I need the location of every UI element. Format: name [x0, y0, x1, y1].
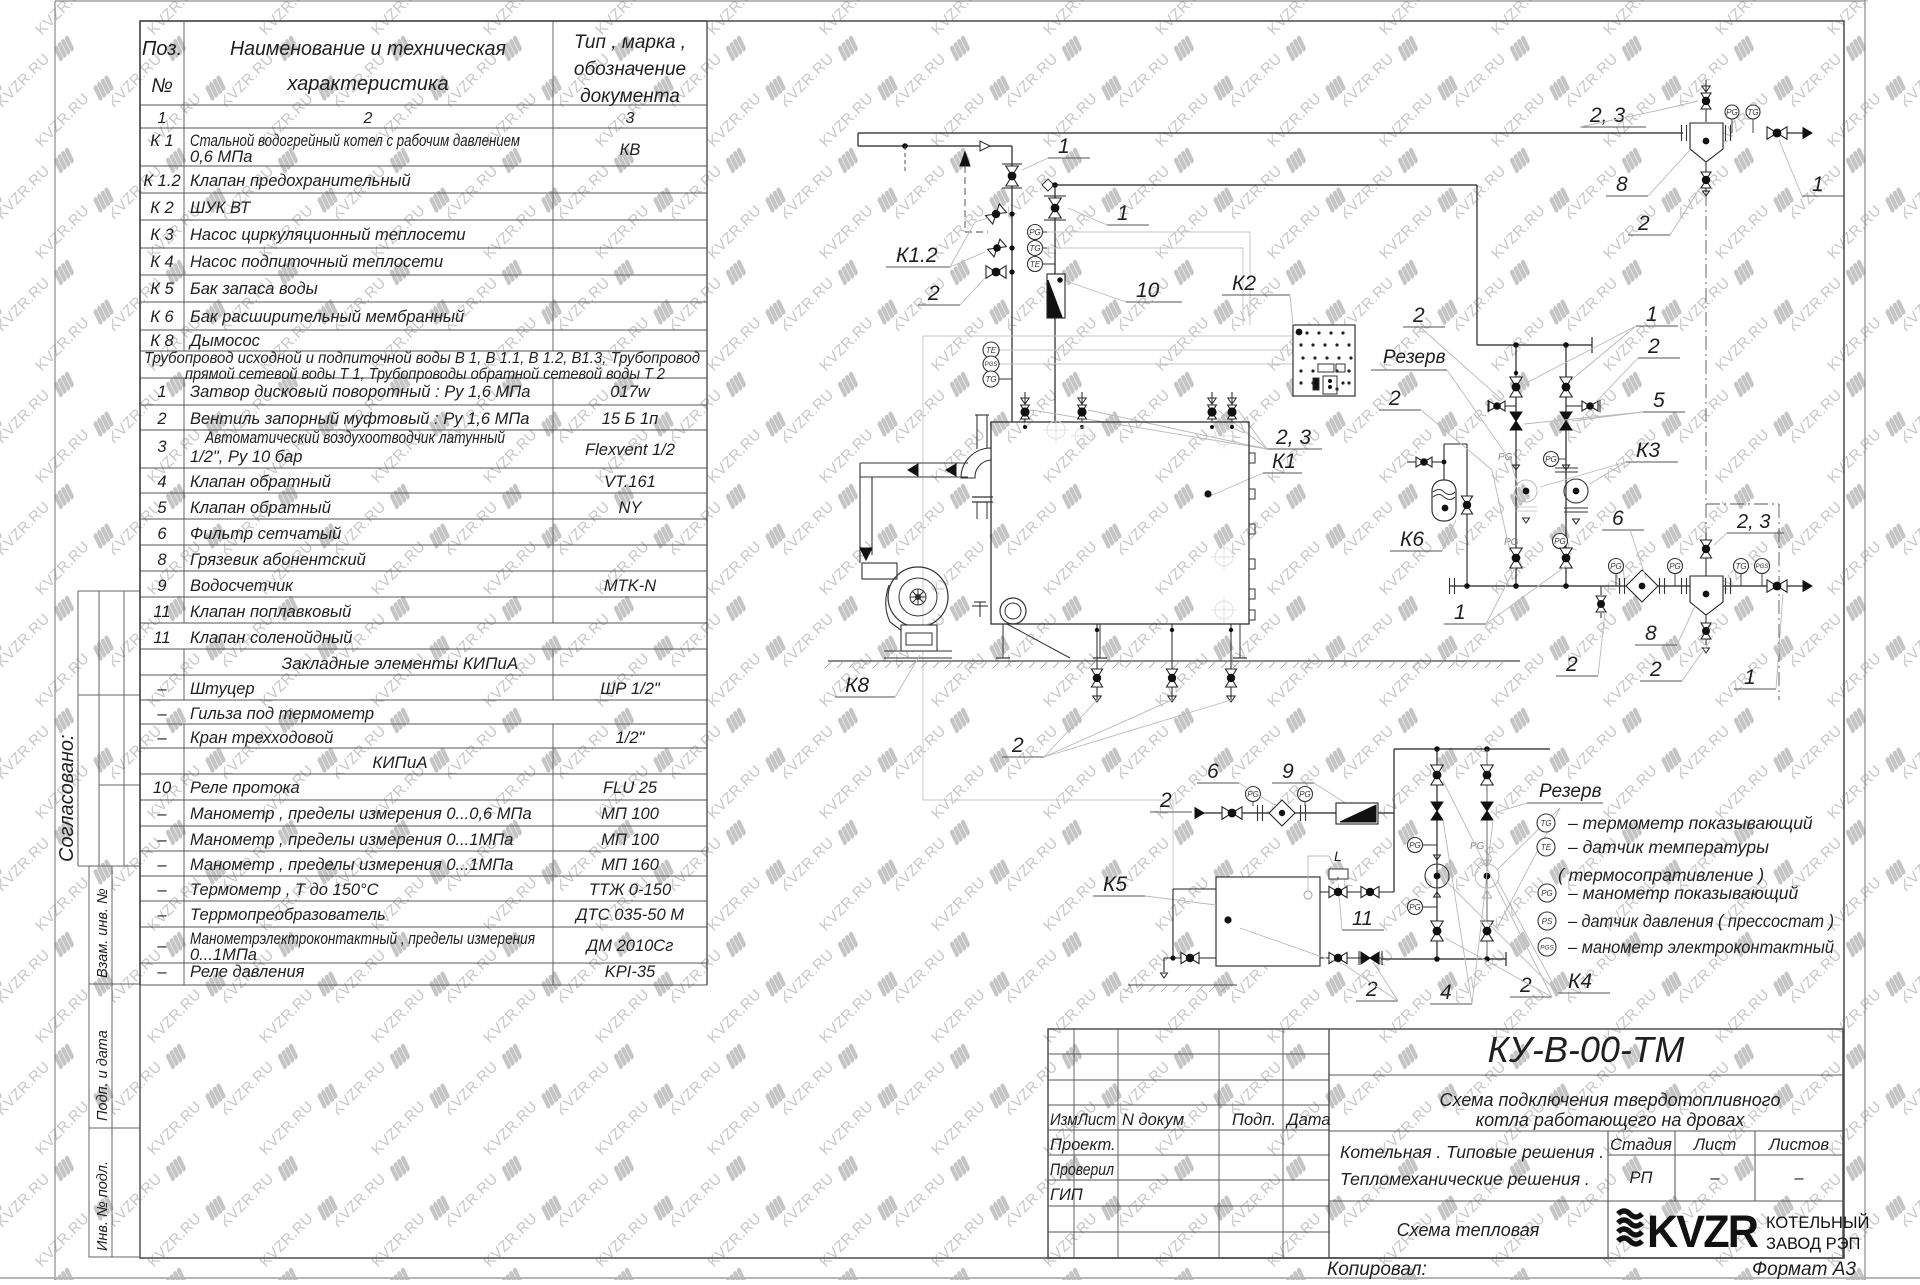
- svg-text:2: 2: [1388, 387, 1401, 410]
- svg-text:2: 2: [363, 110, 373, 127]
- svg-text:Лист: Лист: [1693, 1136, 1736, 1154]
- svg-text:4: 4: [157, 473, 166, 491]
- svg-text:6: 6: [157, 525, 167, 543]
- svg-text:Реле давления: Реле давления: [190, 963, 305, 981]
- svg-text:L: L: [1334, 848, 1342, 864]
- svg-text:KVZR: KVZR: [1647, 1206, 1758, 1257]
- svg-text:TG: TG: [1540, 819, 1551, 828]
- svg-text:К 2: К 2: [150, 199, 174, 217]
- svg-text:Стадия: Стадия: [1610, 1136, 1672, 1154]
- svg-text:TG: TG: [1735, 562, 1746, 571]
- svg-text:К1: К1: [1272, 450, 1296, 473]
- svg-text:Трубопровод исходной и подпито: Трубопровод исходной и подпиточной воды …: [144, 350, 700, 367]
- svg-text:Фильтр сетчатый: Фильтр сетчатый: [190, 525, 341, 543]
- svg-text:МП 100: МП 100: [601, 831, 660, 849]
- svg-text:ДМ 2010Сг: ДМ 2010Сг: [585, 937, 674, 955]
- svg-text:Манометр , пределы измерения: Манометр , пределы измерения 0...1МПа: [190, 831, 513, 849]
- svg-text:Котельная . Типовые решения .: Котельная . Типовые решения .: [1340, 1142, 1604, 1162]
- svg-text:Листов: Листов: [1768, 1136, 1829, 1154]
- svg-text:2: 2: [156, 410, 166, 428]
- svg-text:2: 2: [1365, 978, 1378, 1001]
- svg-text:8: 8: [1645, 622, 1657, 645]
- svg-text:Копировал:: Копировал:: [1327, 1259, 1427, 1280]
- svg-text:Бак расширительный мембранный: Бак расширительный мембранный: [190, 308, 464, 326]
- svg-text:5: 5: [1653, 389, 1665, 412]
- svg-text:Подп. и дата: Подп. и дата: [95, 1030, 111, 1121]
- svg-text:К 1: К 1: [150, 132, 174, 150]
- svg-text:2: 2: [1637, 212, 1650, 235]
- svg-text:PG: PG: [1504, 537, 1519, 548]
- svg-text:К1.2: К1.2: [896, 244, 938, 267]
- svg-text:документа: документа: [580, 86, 680, 107]
- svg-text:Проект.: Проект.: [1050, 1136, 1116, 1154]
- svg-text:1: 1: [1117, 202, 1129, 225]
- svg-text:3: 3: [157, 438, 167, 456]
- svg-text:К 3: К 3: [150, 226, 174, 244]
- svg-text:Реле протока: Реле протока: [190, 779, 300, 797]
- svg-text:PG: PG: [1669, 562, 1681, 571]
- svg-text:–: –: [156, 680, 167, 698]
- svg-text:К2: К2: [1232, 272, 1256, 295]
- svg-text:Бак запаса воды: Бак запаса воды: [190, 280, 318, 298]
- svg-text:MTK-N: MTK-N: [604, 577, 656, 595]
- svg-text:TG: TG: [985, 375, 996, 384]
- svg-text:–: –: [156, 729, 167, 747]
- svg-text:PG: PG: [1541, 889, 1553, 898]
- svg-text:Манометр , пределы измерения: Манометр , пределы измерения 0...1МПа: [190, 856, 513, 874]
- svg-text:К6: К6: [1400, 528, 1424, 551]
- svg-text:PG: PG: [1409, 903, 1421, 912]
- svg-text:К 4: К 4: [150, 253, 174, 271]
- svg-text:2: 2: [1159, 789, 1172, 812]
- svg-text:10: 10: [153, 779, 172, 797]
- svg-text:2: 2: [1519, 974, 1532, 997]
- svg-text:Водосчетчик: Водосчетчик: [190, 577, 294, 595]
- svg-text:TE: TE: [1541, 843, 1552, 852]
- svg-text:9: 9: [1282, 760, 1294, 783]
- svg-text:ДТС 035-50 М: ДТС 035-50 М: [574, 906, 684, 924]
- svg-text:11: 11: [153, 629, 170, 647]
- svg-text:Дымосос: Дымосос: [188, 332, 261, 350]
- svg-text:– датчик давления ( прессост: – датчик давления ( прессостат ): [1567, 911, 1834, 931]
- svg-text:–: –: [156, 705, 167, 723]
- svg-text:1/2": 1/2": [616, 729, 646, 747]
- svg-text:1: 1: [1744, 666, 1756, 689]
- svg-text:ЗАВОД РЭП: ЗАВОД РЭП: [1766, 1235, 1860, 1253]
- svg-text:Клапан обратный: Клапан обратный: [190, 473, 331, 491]
- svg-text:– манометр показывающий: – манометр показывающий: [1567, 883, 1798, 903]
- svg-text:Закладные элементы КИПиА: Закладные элементы КИПиА: [282, 654, 518, 673]
- svg-text:– манометр электроконтактный: – манометр электроконтактный: [1567, 937, 1834, 957]
- svg-text:К5: К5: [1103, 873, 1127, 896]
- svg-text:–: –: [1793, 1169, 1804, 1187]
- svg-text:6: 6: [1207, 760, 1219, 783]
- svg-text:2: 2: [1649, 658, 1662, 681]
- svg-text:Резерв: Резерв: [1539, 781, 1602, 802]
- svg-text:Согласовано:: Согласовано:: [56, 734, 78, 862]
- svg-text:Проверил: Проверил: [1050, 1161, 1114, 1179]
- svg-text:№: №: [151, 75, 173, 97]
- svg-text:–: –: [156, 937, 167, 955]
- svg-text:МП 160: МП 160: [601, 856, 660, 874]
- svg-text:2: 2: [927, 282, 940, 305]
- svg-text:KPI-35: KPI-35: [605, 963, 656, 981]
- svg-text:PG: PG: [1299, 790, 1311, 799]
- svg-text:Гильза под термометр: Гильза под термометр: [190, 705, 374, 723]
- svg-text:Насос циркуляционный теплосети: Насос циркуляционный теплосети: [190, 226, 466, 244]
- svg-text:1: 1: [158, 110, 167, 127]
- svg-text:017w: 017w: [610, 383, 651, 401]
- svg-text:Клапан поплавковый: Клапан поплавковый: [190, 603, 351, 621]
- svg-text:обозначение: обозначение: [574, 59, 686, 80]
- svg-text:–: –: [156, 881, 167, 899]
- svg-text:( термосопративление ): ( термосопративление ): [1558, 865, 1764, 885]
- svg-text:Формат А3: Формат А3: [1752, 1259, 1856, 1280]
- svg-text:К8: К8: [845, 674, 869, 697]
- svg-text:Штуцер: Штуцер: [190, 680, 255, 698]
- svg-text:2, 3: 2, 3: [1275, 426, 1311, 449]
- svg-text:PG: PG: [1610, 562, 1622, 571]
- svg-text:–: –: [156, 856, 167, 874]
- svg-text:МП 100: МП 100: [601, 805, 660, 823]
- svg-text:PGS: PGS: [985, 362, 998, 368]
- svg-text:К 6: К 6: [150, 308, 174, 326]
- svg-text:Тепломеханические решения .: Тепломеханические решения .: [1340, 1169, 1590, 1189]
- svg-text:1: 1: [1646, 303, 1658, 326]
- svg-text:Взам. инв. №: Взам. инв. №: [95, 888, 111, 978]
- svg-text:2: 2: [1647, 335, 1660, 358]
- svg-text:1/2", Ру 10 бар: 1/2", Ру 10 бар: [190, 448, 302, 466]
- svg-text:–: –: [156, 805, 167, 823]
- svg-text:11: 11: [153, 603, 170, 621]
- svg-text:Flexvent 1/2: Flexvent 1/2: [585, 441, 675, 459]
- svg-text:1: 1: [1812, 173, 1824, 196]
- svg-text:PGS: PGS: [1540, 944, 1554, 951]
- svg-text:VT.161: VT.161: [604, 473, 656, 491]
- svg-text:NY: NY: [619, 499, 643, 517]
- svg-text:–: –: [156, 831, 167, 849]
- svg-text:ШР 1/2": ШР 1/2": [600, 680, 661, 698]
- svg-text:К 1.2: К 1.2: [143, 172, 180, 190]
- svg-text:PGS: PGS: [1756, 564, 1769, 570]
- svg-text:Террмопреобразователь: Террмопреобразователь: [190, 906, 386, 924]
- svg-text:Грязевик абонентский: Грязевик абонентский: [190, 551, 366, 569]
- svg-text:К3: К3: [1636, 439, 1660, 462]
- svg-text:котла работающего на дровах: котла работающего на дровах: [1476, 1110, 1746, 1130]
- svg-text:FLU 25: FLU 25: [603, 779, 658, 797]
- svg-text:Наименование и техническая: Наименование и техническая: [230, 38, 506, 60]
- svg-text:характеристика: характеристика: [286, 73, 448, 95]
- svg-text:– датчик температуры: – датчик температуры: [1567, 837, 1769, 857]
- svg-text:Вентиль запорный муфтовый : Р: Вентиль запорный муфтовый : Ру 1,6 МПа: [190, 410, 529, 428]
- svg-text:1: 1: [157, 383, 166, 401]
- svg-text:КУ-В-00-ТМ: КУ-В-00-ТМ: [1488, 1029, 1685, 1070]
- svg-text:Тип , марка ,: Тип , марка ,: [574, 32, 686, 53]
- svg-text:КВ: КВ: [620, 141, 641, 159]
- svg-text:– термометр показывающий: – термометр показывающий: [1567, 813, 1813, 833]
- svg-text:PG: PG: [1029, 228, 1041, 237]
- svg-text:КИПиА: КИПиА: [372, 753, 427, 772]
- svg-text:TE: TE: [1030, 260, 1041, 269]
- svg-text:ИзмЛист: ИзмЛист: [1050, 1111, 1116, 1129]
- svg-text:TE: TE: [986, 346, 997, 355]
- svg-text:К4: К4: [1568, 970, 1592, 993]
- svg-text:1: 1: [1454, 601, 1466, 624]
- svg-text:–: –: [156, 963, 167, 981]
- svg-text:Резерв: Резерв: [1383, 347, 1446, 368]
- svg-text:Дата: Дата: [1285, 1111, 1331, 1129]
- svg-text:2: 2: [1011, 734, 1024, 757]
- svg-text:Клапан предохранительный: Клапан предохранительный: [190, 172, 411, 190]
- svg-text:КОТЕЛЬНЫЙ: КОТЕЛЬНЫЙ: [1766, 1213, 1869, 1232]
- svg-text:0,6 МПа: 0,6 МПа: [190, 148, 252, 166]
- svg-text:Клапан обратный: Клапан обратный: [190, 499, 331, 517]
- svg-text:TG: TG: [1029, 244, 1040, 253]
- svg-text:прямой сетевой воды Т 1, Тру: прямой сетевой воды Т 1, Трубопроводы об…: [185, 366, 665, 383]
- svg-text:Кран трехходовой: Кран трехходовой: [190, 729, 333, 747]
- svg-text:2, 3: 2, 3: [1736, 511, 1770, 533]
- svg-text:Поз.: Поз.: [142, 38, 182, 60]
- svg-text:10: 10: [1136, 279, 1160, 302]
- svg-text:ШУК ВТ: ШУК ВТ: [190, 199, 252, 217]
- svg-text:К 8: К 8: [150, 332, 174, 350]
- svg-text:Термометр , Т до 150°С: Термометр , Т до 150°С: [190, 881, 379, 899]
- svg-text:ТТЖ 0-150: ТТЖ 0-150: [589, 881, 672, 899]
- svg-text:3: 3: [626, 110, 635, 127]
- svg-text:РП: РП: [1630, 1169, 1653, 1187]
- svg-text:2: 2: [1565, 653, 1578, 676]
- svg-text:4: 4: [1440, 981, 1452, 1004]
- svg-text:11: 11: [1352, 908, 1373, 930]
- svg-text:0...1МПа: 0...1МПа: [190, 946, 257, 964]
- svg-text:Затвор дисковый поворотный :: Затвор дисковый поворотный : Ру 1,6 МПа: [190, 383, 530, 401]
- svg-text:–: –: [1709, 1169, 1720, 1187]
- svg-text:PG: PG: [1409, 841, 1421, 850]
- svg-text:Инв. № подл.: Инв. № подл.: [95, 1161, 111, 1251]
- svg-text:TG: TG: [1747, 108, 1758, 117]
- svg-text:К 5: К 5: [150, 280, 174, 298]
- svg-text:PG: PG: [1470, 841, 1485, 852]
- svg-text:PS: PS: [1542, 917, 1553, 926]
- svg-text:N докум: N докум: [1122, 1111, 1184, 1129]
- svg-text:Схема подключения твердотоплив: Схема подключения твердотопливного: [1440, 1090, 1781, 1110]
- svg-text:Схема тепловая: Схема тепловая: [1397, 1220, 1540, 1240]
- svg-text:PG: PG: [1726, 108, 1738, 117]
- svg-text:PG: PG: [1554, 537, 1566, 546]
- svg-text:8: 8: [157, 551, 167, 569]
- svg-text:Манометр , пределы измерения: Манометр , пределы измерения 0...0,6 МПа: [190, 805, 532, 823]
- svg-text:15 Б 1п: 15 Б 1п: [602, 410, 659, 428]
- svg-text:6: 6: [1612, 507, 1624, 530]
- svg-text:2: 2: [1412, 304, 1425, 327]
- svg-text:–: –: [156, 906, 167, 924]
- svg-text:ГИП: ГИП: [1050, 1186, 1083, 1204]
- svg-text:Клапан соленойдный: Клапан соленойдный: [190, 629, 352, 647]
- svg-text:1: 1: [1058, 135, 1070, 158]
- svg-text:9: 9: [157, 577, 166, 595]
- svg-text:Автоматический воздухоотводчик: Автоматический воздухоотводчик латунный: [204, 429, 505, 447]
- svg-text:8: 8: [1616, 173, 1628, 196]
- svg-text:Подп.: Подп.: [1232, 1111, 1276, 1129]
- svg-text:PG: PG: [1545, 455, 1557, 464]
- svg-text:5: 5: [157, 499, 167, 517]
- svg-text:Насос подпиточный теплосети: Насос подпиточный теплосети: [190, 253, 443, 271]
